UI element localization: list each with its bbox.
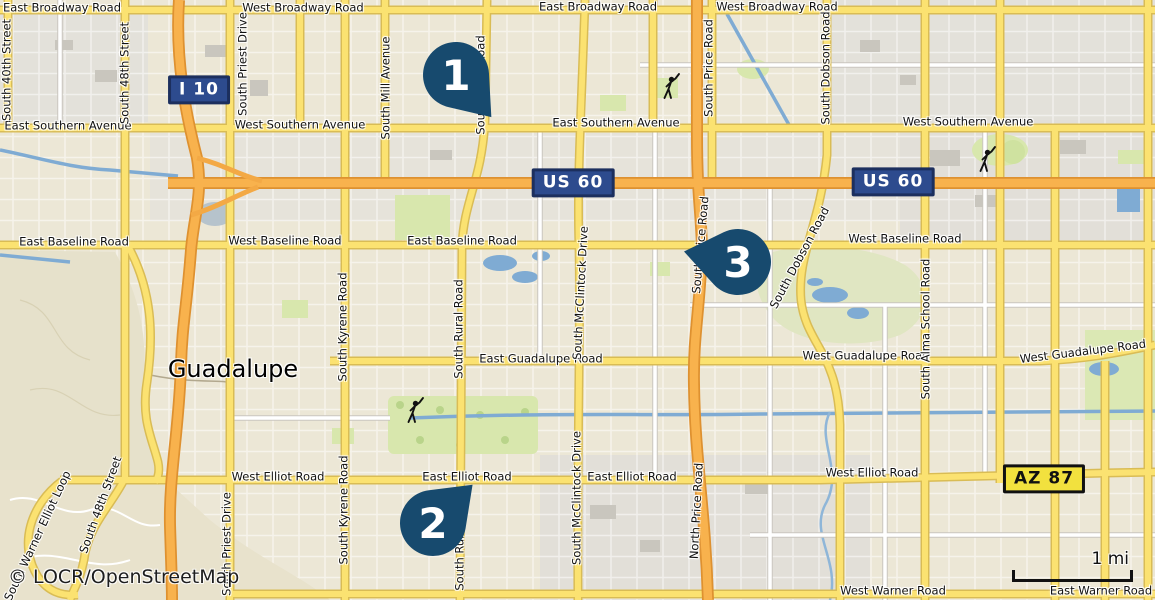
map-attribution: © LOCR/OpenStreetMap xyxy=(8,566,239,588)
map-marker-1[interactable]: 1 xyxy=(410,29,517,139)
map-marker-2[interactable]: 2 xyxy=(386,461,495,570)
map-marker-3[interactable]: 3 xyxy=(678,219,777,301)
scale-line xyxy=(1012,570,1133,582)
marker-number: 3 xyxy=(723,238,752,287)
golfer-icon xyxy=(409,398,424,422)
golfer-icon xyxy=(981,147,996,171)
map-canvas[interactable]: Guadalupe East Broadway RoadWest Broadwa… xyxy=(0,0,1155,600)
golfer-icon xyxy=(665,74,680,98)
scale-bar: 1 mi xyxy=(1012,549,1133,582)
marker-layer: 123 xyxy=(0,0,1155,600)
marker-number: 2 xyxy=(418,499,447,548)
marker-number: 1 xyxy=(441,51,470,100)
scale-label: 1 mi xyxy=(1012,549,1133,569)
